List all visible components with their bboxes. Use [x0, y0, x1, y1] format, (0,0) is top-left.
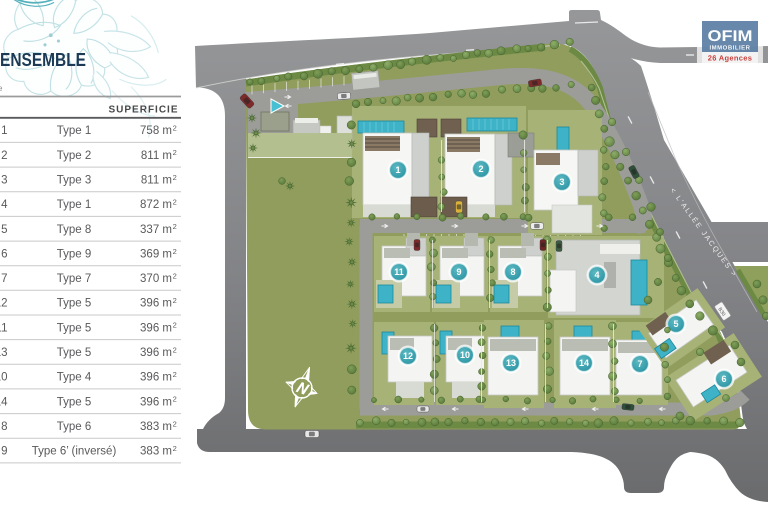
svg-text:Type 9: Type 9	[57, 248, 92, 260]
svg-text:5: 5	[1, 224, 7, 236]
svg-text:Type 1: Type 1	[57, 199, 92, 211]
svg-text:396 m: 396 m	[140, 396, 172, 408]
svg-text:2: 2	[478, 164, 483, 174]
svg-text:2: 2	[173, 271, 177, 280]
svg-text:7: 7	[637, 359, 642, 369]
svg-text:2: 2	[173, 321, 177, 330]
svg-text:3: 3	[1, 174, 7, 186]
svg-text:10: 10	[460, 350, 470, 360]
svg-text:2: 2	[173, 124, 177, 133]
svg-text:383 m: 383 m	[140, 421, 172, 433]
svg-text:8: 8	[510, 267, 515, 277]
svg-text:4: 4	[594, 270, 599, 280]
svg-text:7: 7	[1, 273, 7, 285]
svg-text:2: 2	[173, 198, 177, 207]
svg-text:Type 3: Type 3	[57, 174, 92, 186]
svg-text:396 m: 396 m	[140, 298, 172, 310]
svg-text:13: 13	[506, 358, 516, 368]
svg-text:13: 13	[0, 347, 8, 359]
svg-text:Type 4: Type 4	[57, 372, 92, 384]
svg-text:2: 2	[173, 419, 177, 428]
svg-text:Type 5: Type 5	[57, 298, 92, 310]
svg-text:26 Agences: 26 Agences	[708, 53, 752, 62]
svg-text:2: 2	[173, 173, 177, 182]
svg-text:383 m: 383 m	[140, 446, 172, 458]
svg-text:12: 12	[403, 351, 413, 361]
svg-text:Type 5: Type 5	[57, 396, 92, 408]
svg-text:2: 2	[173, 444, 177, 453]
svg-text:IMMOBILIER: IMMOBILIER	[709, 45, 750, 51]
svg-text:2: 2	[173, 247, 177, 256]
svg-text:6: 6	[721, 374, 726, 384]
svg-text:e: e	[0, 84, 3, 93]
svg-text:6: 6	[1, 248, 7, 260]
svg-text:2: 2	[173, 296, 177, 305]
svg-text:9: 9	[1, 446, 7, 458]
svg-text:Type 5: Type 5	[57, 322, 92, 334]
svg-text:SUPERFICIE: SUPERFICIE	[108, 105, 178, 116]
svg-text:396 m: 396 m	[140, 372, 172, 384]
svg-text:2: 2	[173, 345, 177, 354]
svg-text:758 m: 758 m	[140, 125, 172, 137]
svg-text:10: 10	[0, 372, 8, 384]
svg-text:14: 14	[579, 358, 589, 368]
svg-text:1: 1	[395, 165, 400, 175]
svg-text:Type 1: Type 1	[57, 125, 92, 137]
svg-text:12: 12	[0, 298, 8, 310]
svg-text:14: 14	[0, 396, 8, 408]
svg-text:369 m: 369 m	[140, 248, 172, 260]
svg-text:OFIM: OFIM	[707, 28, 752, 45]
svg-text:2: 2	[173, 148, 177, 157]
svg-text:Type 2: Type 2	[57, 150, 92, 162]
svg-text:8: 8	[1, 421, 7, 433]
svg-text:Type 8: Type 8	[57, 224, 92, 236]
svg-text:11: 11	[394, 267, 404, 277]
svg-text:11: 11	[0, 322, 8, 334]
svg-text:872 m: 872 m	[140, 199, 172, 211]
svg-text:811 m: 811 m	[141, 174, 172, 186]
svg-text:Type 7: Type 7	[57, 273, 92, 285]
svg-text:2: 2	[173, 395, 177, 404]
svg-text:9: 9	[456, 267, 461, 277]
svg-text:2: 2	[1, 150, 7, 162]
svg-text:396 m: 396 m	[140, 347, 172, 359]
svg-text:ENSEMBLE: ENSEMBLE	[0, 50, 86, 70]
svg-text:2: 2	[173, 222, 177, 231]
svg-text:3: 3	[559, 177, 564, 187]
svg-text:Type 5: Type 5	[57, 347, 92, 359]
svg-text:5: 5	[673, 319, 678, 329]
svg-text:4: 4	[1, 199, 8, 211]
svg-text:811 m: 811 m	[141, 150, 172, 162]
svg-text:337 m: 337 m	[140, 224, 172, 236]
svg-text:370 m: 370 m	[140, 273, 172, 285]
svg-text:2: 2	[173, 370, 177, 379]
svg-text:1: 1	[1, 125, 7, 137]
svg-text:396 m: 396 m	[140, 322, 172, 334]
svg-text:Type 6’ (inversé): Type 6’ (inversé)	[32, 446, 117, 458]
svg-text:Type 6: Type 6	[57, 421, 92, 433]
